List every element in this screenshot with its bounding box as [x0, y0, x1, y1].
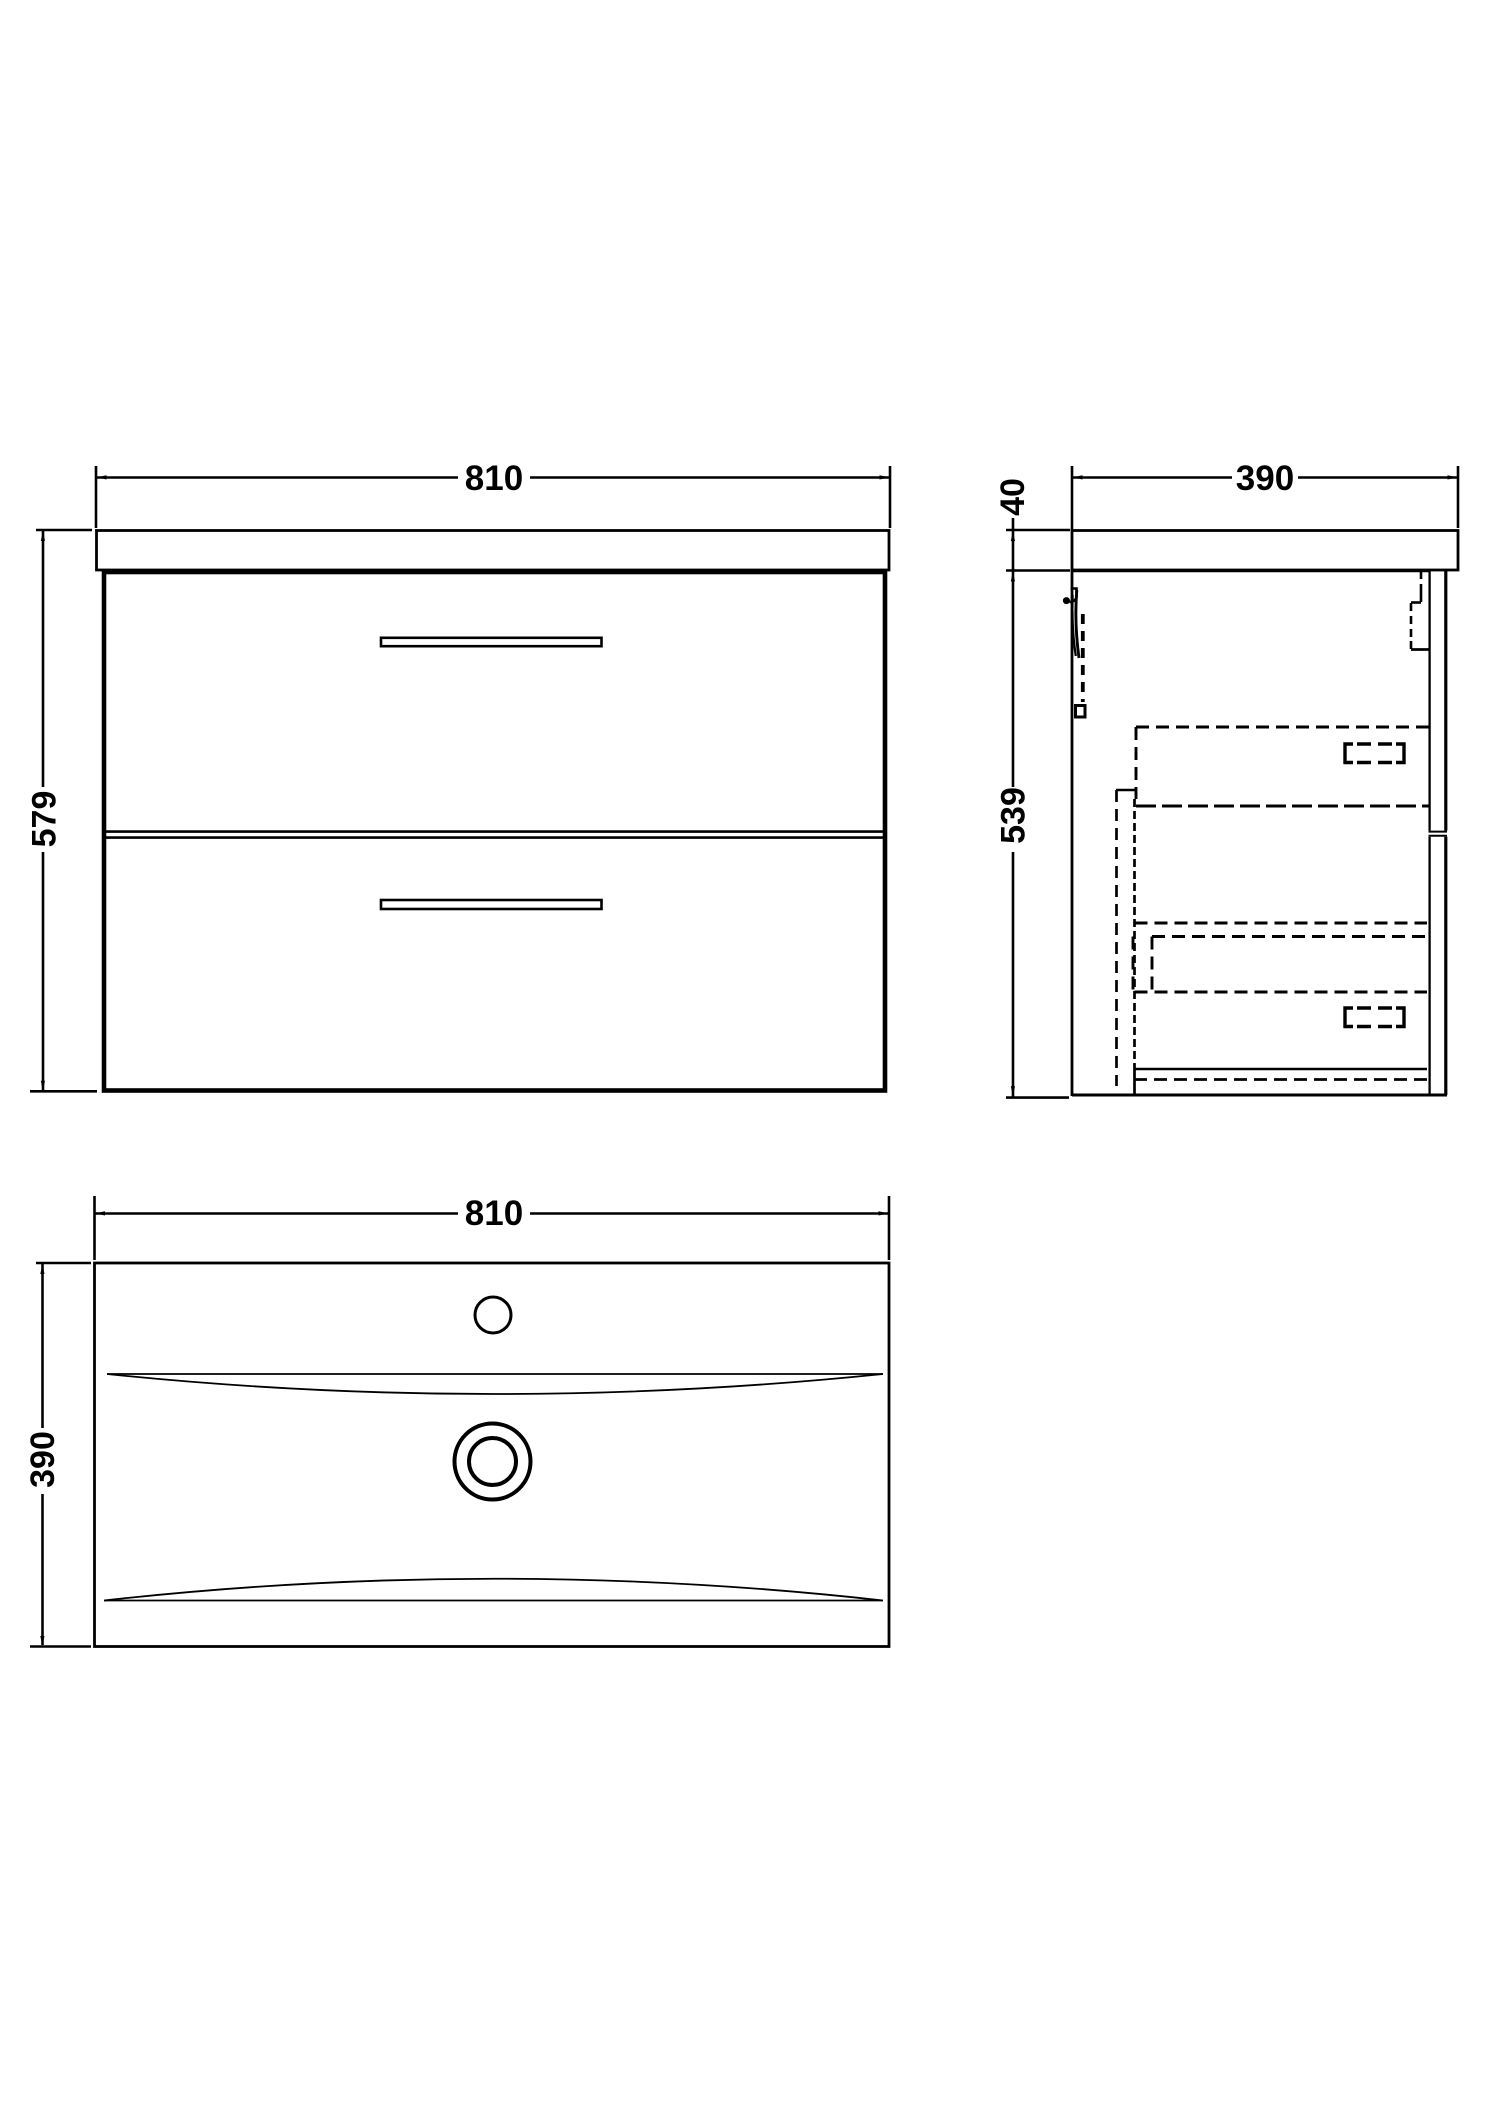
svg-text:40: 40 — [994, 478, 1032, 516]
svg-text:810: 810 — [465, 459, 523, 498]
svg-text:539: 539 — [994, 787, 1032, 844]
svg-text:390: 390 — [1236, 459, 1294, 498]
svg-text:390: 390 — [24, 1431, 62, 1488]
svg-text:810: 810 — [465, 1194, 523, 1233]
svg-text:579: 579 — [26, 791, 64, 848]
